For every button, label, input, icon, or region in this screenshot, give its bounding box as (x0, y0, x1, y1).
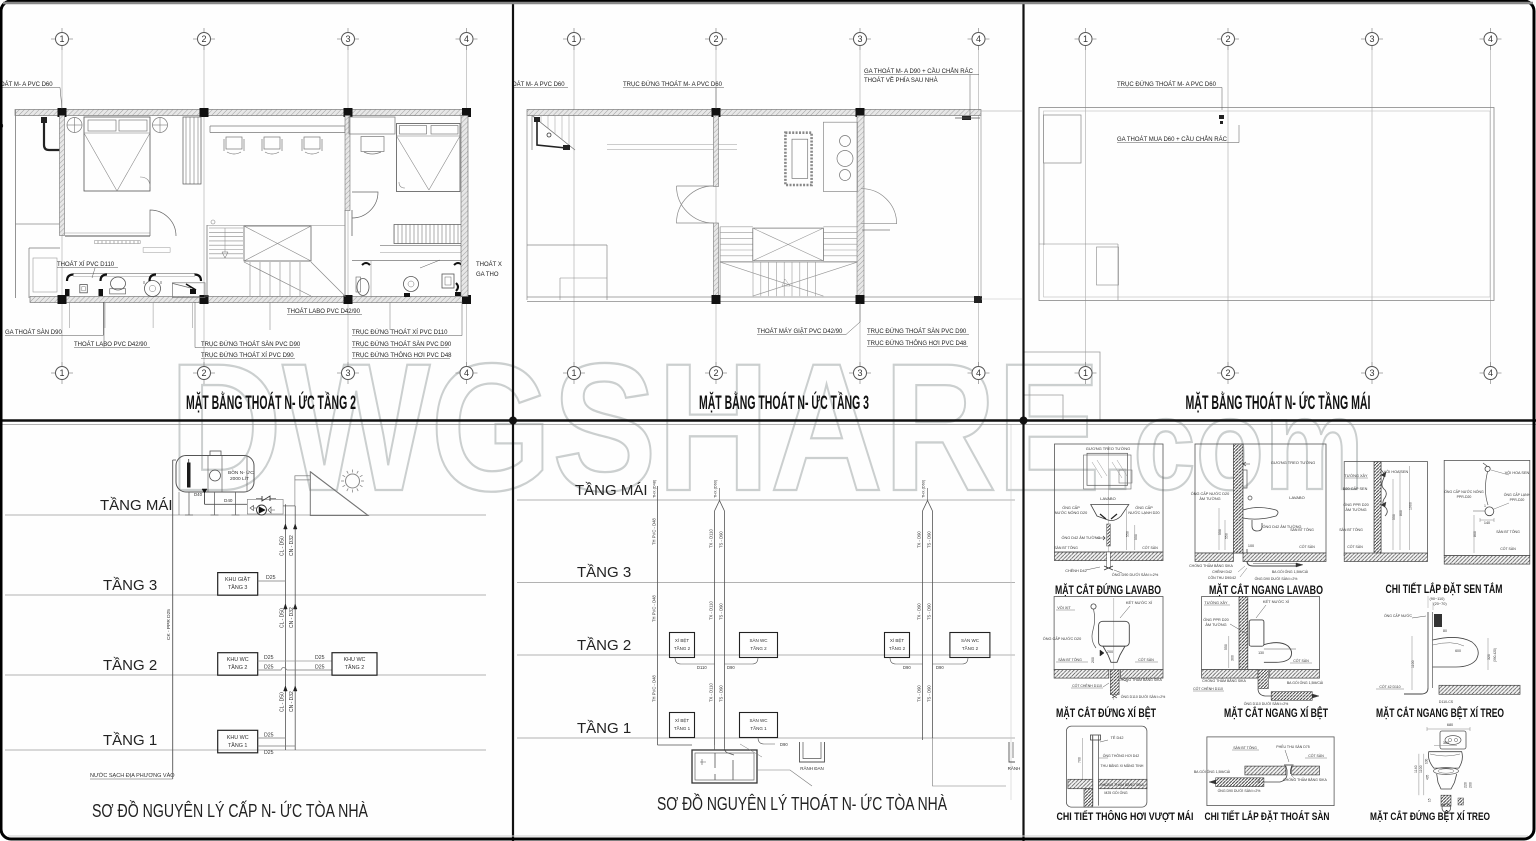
svg-text:ỐNG D90 DƯỚI SÀN i=2%: ỐNG D90 DƯỚI SÀN i=2% (1255, 576, 1298, 581)
svg-text:ỐNG D90 DƯỚI SÀN i=2%: ỐNG D90 DƯỚI SÀN i=2% (1218, 788, 1261, 793)
svg-text:ỐNG CẤP NƯỚC D20: ỐNG CẤP NƯỚC D20 (1043, 636, 1082, 641)
svg-text:200: 200 (1469, 782, 1473, 788)
svg-text:XÍ BỆT: XÍ BỆT (890, 636, 905, 643)
svg-text:TẦNG 3: TẦNG 3 (103, 577, 157, 594)
svg-text:TẦNG 2: TẦNG 2 (345, 664, 364, 671)
svg-text:D25: D25 (264, 750, 274, 756)
svg-text:TS - D90: TS - D90 (719, 531, 724, 548)
svg-text:CỐT SÀN: CỐT SÀN (1142, 545, 1158, 550)
svg-text:D110: D110 (697, 665, 707, 670)
svg-text:550: 550 (1224, 533, 1228, 539)
svg-text:800: 800 (1473, 531, 1477, 537)
svg-text:NƯỚC NÓNG D20: NƯỚC NÓNG D20 (1055, 510, 1087, 515)
svg-text:3: 3 (857, 34, 862, 44)
svg-text:D25: D25 (315, 665, 325, 671)
svg-text:3: 3 (857, 368, 862, 378)
svg-text:NƯỚC LẠNH D20: NƯỚC LẠNH D20 (1128, 510, 1159, 515)
svg-text:550: 550 (1218, 529, 1222, 535)
svg-text:CHỐNG THẤM BẰNG SIKA: CHỐNG THẤM BẰNG SIKA (1202, 678, 1246, 683)
svg-text:MẶT BẰNG THOÁT N- ỨC TẦNG 2: MẶT BẰNG THOÁT N- ỨC TẦNG 2 (186, 392, 356, 414)
svg-text:D25: D25 (264, 733, 274, 739)
svg-text:100: 100 (1248, 544, 1254, 548)
svg-text:GA THO: GA THO (476, 272, 499, 278)
svg-text:CỐT SÀN: CỐT SÀN (1138, 657, 1154, 662)
svg-text:TÊ D42: TÊ D42 (1111, 735, 1124, 740)
svg-text:3: 3 (1369, 34, 1374, 44)
svg-text:360: 360 (1443, 741, 1449, 745)
svg-text:2: 2 (201, 34, 206, 44)
svg-text:ÂM TƯỜNG: ÂM TƯỜNG (1345, 507, 1366, 512)
svg-text:D90: D90 (780, 742, 788, 747)
svg-text:600: 600 (1455, 649, 1461, 653)
svg-text:THOÁT X: THOÁT X (476, 261, 502, 268)
svg-text:SÀN WC: SÀN WC (961, 637, 980, 643)
svg-text:VÒI XỊT: VÒI XỊT (1057, 605, 1071, 610)
svg-text:ỐNG D90 DƯỚI SÀN i=2%: ỐNG D90 DƯỚI SÀN i=2% (1112, 572, 1159, 577)
svg-text:D25: D25 (264, 655, 274, 661)
svg-text:CỐT SÀN: CỐT SÀN (1293, 658, 1309, 663)
svg-text:CỐT SÀN: CỐT SÀN (1347, 544, 1363, 549)
svg-text:TẦNG 1: TẦNG 1 (577, 720, 631, 737)
svg-text:220: 220 (1464, 782, 1468, 788)
svg-text:VÒI HOA SEN: VÒI HOA SEN (1384, 469, 1409, 474)
svg-text:TẦNG 2: TẦNG 2 (228, 664, 247, 671)
svg-text:SÀN BT TÔNG: SÀN BT TÔNG (1339, 527, 1363, 532)
svg-text:BA GỐI ỐNG 1,5M/CÁI: BA GỐI ỐNG 1,5M/CÁI (1287, 680, 1323, 685)
svg-text:TX - D110: TX - D110 (709, 601, 714, 620)
svg-text:TX - D110: TX - D110 (709, 529, 714, 548)
svg-text:MẶT CẮT ĐỨNG XÍ BỆT: MẶT CẮT ĐỨNG XÍ BỆT (1056, 707, 1156, 720)
svg-text:SƠ ĐỒ NGUYÊN LÝ THOÁT N- ỨC TÒ: SƠ ĐỒ NGUYÊN LÝ THOÁT N- ỨC TÒA NHÀ (657, 793, 947, 814)
svg-text:SÀN WC: SÀN WC (750, 637, 769, 643)
svg-text:XÍ BỆT: XÍ BỆT (675, 716, 690, 723)
svg-text:TẦNG 1: TẦNG 1 (674, 725, 691, 731)
svg-text:TS - D90: TS - D90 (719, 603, 724, 620)
svg-text:1100: 1100 (1419, 765, 1423, 773)
svg-text:CỐT 42 D110: CỐT 42 D110 (1379, 684, 1400, 689)
svg-text:GA THOÁT SÀN D90: GA THOÁT SÀN D90 (5, 329, 62, 336)
svg-text:680: 680 (1447, 723, 1453, 727)
svg-text:CHỐNG THẤM BẰNG SIKA: CHỐNG THẤM BẰNG SIKA (1189, 563, 1233, 568)
svg-text:PPR-D20: PPR-D20 (1457, 495, 1472, 499)
svg-text:D90: D90 (936, 665, 944, 670)
svg-text:TƯỜNG XÂY: TƯỜNG XÂY (1344, 473, 1368, 478)
svg-text:KÉT NƯỚC XÍ: KÉT NƯỚC XÍ (1263, 599, 1290, 604)
svg-text:RÃNH: RÃNH (1008, 765, 1021, 771)
svg-text:TS - D90: TS - D90 (719, 685, 724, 702)
svg-text:CHI TIẾT THÔNG HƠI VƯỢT MÁI: CHI TIẾT THÔNG HƠI VƯỢT MÁI (1057, 810, 1194, 823)
svg-text:550: 550 (1392, 514, 1396, 520)
svg-text:THOÁT XÍ PVC D110: THOÁT XÍ PVC D110 (57, 261, 115, 268)
svg-text:550: 550 (1224, 644, 1228, 650)
svg-text:2: 2 (1225, 368, 1230, 378)
svg-text:D20 CẤP SEN: D20 CẤP SEN (1343, 487, 1368, 491)
svg-text:CỐT CHÊNH D110: CỐT CHÊNH D110 (1193, 686, 1223, 691)
svg-text:20: 20 (1257, 779, 1261, 783)
svg-text:KÉT NƯỚC XÍ: KÉT NƯỚC XÍ (1126, 600, 1153, 605)
svg-text:320: 320 (1487, 654, 1491, 660)
svg-text:TH PVC - D48: TH PVC - D48 (652, 595, 657, 622)
svg-text:THX (D60): THX (D60) (922, 479, 926, 498)
svg-text:1: 1 (1484, 504, 1486, 508)
svg-text:3: 3 (345, 368, 350, 378)
svg-text:4: 4 (1488, 368, 1493, 378)
svg-text:CỐT CHÊNH D110: CỐT CHÊNH D110 (1072, 683, 1102, 688)
svg-text:1: 1 (1083, 368, 1088, 378)
svg-text:ỐNG CẤP: ỐNG CẤP (1135, 505, 1153, 510)
svg-text:D25: D25 (315, 655, 325, 661)
svg-text:(390-420): (390-420) (1493, 648, 1497, 662)
svg-text:ÂM TƯỜNG: ÂM TƯỜNG (1205, 622, 1226, 627)
svg-text:TS - D90: TS - D90 (927, 603, 932, 620)
svg-text:CHÊNH D42: CHÊNH D42 (1212, 569, 1232, 574)
svg-text:D110-CS: D110-CS (1439, 700, 1454, 704)
svg-text:TX - D110: TX - D110 (709, 683, 714, 702)
svg-text:SÀN BT TÔNG: SÀN BT TÔNG (1290, 527, 1314, 532)
svg-text:D40: D40 (224, 498, 233, 503)
svg-text:140: 140 (1484, 521, 1490, 525)
svg-text:SÀN BT TÔNG: SÀN BT TÔNG (1233, 745, 1257, 750)
svg-text:GƯƠNG TREO TƯỜNG: GƯƠNG TREO TƯỜNG (1271, 460, 1315, 465)
svg-text:200: 200 (1091, 657, 1095, 663)
svg-text:GA THOÁT M- A D90 + CẦU CHẮN R: GA THOÁT M- A D90 + CẦU CHẮN RÁC (864, 67, 974, 75)
svg-text:KHU WC: KHU WC (227, 657, 249, 663)
svg-text:MẶT BẰNG THOÁT N- ỨC TẦNG MÁI: MẶT BẰNG THOÁT N- ỨC TẦNG MÁI (1186, 392, 1371, 414)
svg-text:CL - D50: CL - D50 (279, 536, 285, 556)
svg-text:TS - D90: TS - D90 (927, 531, 932, 548)
svg-text:1: 1 (1083, 34, 1088, 44)
svg-text:TẦNG 1: TẦNG 1 (750, 725, 767, 731)
svg-text:ỐNG CẤP: ỐNG CẤP (1062, 505, 1080, 510)
svg-text:D90: D90 (727, 665, 735, 670)
svg-text:CỐT SÀN: CỐT SÀN (1299, 544, 1315, 549)
svg-text:TRỤC ĐỨNG THOÁT M- A PVC D60: TRỤC ĐỨNG THOÁT M- A PVC D60 (623, 81, 723, 88)
svg-text:MẶT CẮT NGANG BỆT XÍ TREO: MẶT CẮT NGANG BỆT XÍ TREO (1376, 707, 1504, 720)
svg-text:(20~70): (20~70) (1433, 602, 1447, 606)
svg-text:CN - D32: CN - D32 (289, 691, 295, 712)
svg-text:XÍ BỆT: XÍ BỆT (675, 636, 690, 643)
svg-text:MẶT CẮT NGANG LAVABO: MẶT CẮT NGANG LAVABO (1209, 584, 1323, 597)
svg-text:15: 15 (1428, 798, 1432, 802)
svg-text:1: 1 (571, 368, 576, 378)
svg-text:TRỤC ĐỨNG THOÁT SÀN PVC D90: TRỤC ĐỨNG THOÁT SÀN PVC D90 (352, 341, 452, 348)
svg-text:1: 1 (571, 34, 576, 44)
svg-text:ỐNG D42 ÂM TƯỜNG: ỐNG D42 ÂM TƯỜNG (1062, 535, 1101, 540)
svg-text:CK - PPR D25: CK - PPR D25 (166, 609, 172, 640)
svg-text:1900: 1900 (1409, 502, 1413, 510)
svg-text:BỒN N- ỨC: BỒN N- ỨC (228, 469, 254, 476)
svg-text:2: 2 (713, 368, 718, 378)
svg-text:2000 LÍT: 2000 LÍT (230, 475, 249, 482)
svg-text:800: 800 (1399, 510, 1403, 516)
svg-text:CỐT SÀN: CỐT SÀN (1500, 546, 1516, 551)
svg-text:TRỤC ĐỨNG THOÁT XÍ PVC D110: TRỤC ĐỨNG THOÁT XÍ PVC D110 (352, 329, 448, 336)
svg-text:ỐNG PPR D20: ỐNG PPR D20 (1343, 502, 1369, 507)
svg-text:ỐNG D110 DƯỚI SÀN i=2%: ỐNG D110 DƯỚI SÀN i=2% (1244, 701, 1289, 706)
svg-text:550: 550 (1134, 534, 1138, 540)
svg-text:ỐNG CẤP NƯỚC D20: ỐNG CẤP NƯỚC D20 (1191, 491, 1230, 496)
svg-text:TX - D90: TX - D90 (917, 685, 922, 702)
svg-text:LAVABO: LAVABO (1100, 496, 1115, 501)
svg-text:OÁT M- A PVC D60: OÁT M- A PVC D60 (0, 81, 53, 88)
svg-text:ỐNG CẤP NƯỚC NÓNG: ỐNG CẤP NƯỚC NÓNG (1444, 489, 1484, 494)
svg-text:2: 2 (713, 34, 718, 44)
svg-text:CỐT SÀN: CỐT SÀN (1308, 753, 1324, 758)
svg-text:550: 550 (1126, 531, 1130, 537)
svg-text:(90~110): (90~110) (1429, 597, 1445, 601)
svg-text:TẦNG 2: TẦNG 2 (750, 645, 767, 651)
svg-text:SÀN BT TÔNG: SÀN BT TÔNG (1058, 657, 1082, 662)
svg-text:THOÁT LABO PVC D42/90: THOÁT LABO PVC D42/90 (287, 308, 361, 315)
svg-text:CHỐNG THẤM BẰNG SIKA: CHỐNG THẤM BẰNG SIKA (1283, 777, 1327, 782)
svg-text:THX (D60): THX (D60) (714, 479, 718, 498)
svg-text:435: 435 (1426, 774, 1430, 780)
svg-text:NƯỚC SẠCH ĐỊA PHƯƠNG VÀO: NƯỚC SẠCH ĐỊA PHƯƠNG VÀO (90, 772, 175, 779)
svg-text:SƠ ĐỒ NGUYÊN LÝ CẤP N- ỨC TÒA: SƠ ĐỒ NGUYÊN LÝ CẤP N- ỨC TÒA NHÀ (92, 800, 368, 821)
svg-text:SÀN WC: SÀN WC (750, 717, 769, 723)
svg-text:TRỤC ĐỨNG THOÁT SÀN PVC D90: TRỤC ĐỨNG THOÁT SÀN PVC D90 (867, 328, 967, 335)
svg-text:OÁT M- A PVC D60: OÁT M- A PVC D60 (512, 81, 565, 88)
svg-text:2: 2 (1225, 34, 1230, 44)
svg-text:700: 700 (1078, 757, 1082, 763)
svg-text:CHI TIẾT LẮP ĐẶT SEN TẮM: CHI TIẾT LẮP ĐẶT SEN TẮM (1386, 583, 1503, 596)
svg-text:TH PVC - D48: TH PVC - D48 (652, 675, 657, 702)
svg-text:TƯỜNG XÂY: TƯỜNG XÂY (1204, 600, 1228, 605)
svg-text:MẶT CẮT ĐỨNG BỆT XÍ TREO: MẶT CẮT ĐỨNG BỆT XÍ TREO (1370, 810, 1490, 823)
svg-text:SÀN BT TÔNG: SÀN BT TÔNG (1496, 529, 1520, 534)
svg-text:BA GỐI ỐNG 1,5M/CÁI: BA GỐI ỐNG 1,5M/CÁI (1272, 569, 1308, 574)
svg-text:THOÁT LABO PVC D42/90: THOÁT LABO PVC D42/90 (74, 341, 148, 348)
svg-text:MẶT BẰNG THOÁT N- ỨC TẦNG 3: MẶT BẰNG THOÁT N- ỨC TẦNG 3 (699, 392, 869, 414)
svg-text:1140: 1140 (1414, 765, 1418, 773)
svg-text:TẦNG 2: TẦNG 2 (103, 657, 157, 674)
svg-text:D25: D25 (266, 575, 276, 581)
svg-text:TẦNG 2: TẦNG 2 (577, 637, 631, 654)
svg-text:TRỤC ĐỨNG THÔNG HƠI PVC D48: TRỤC ĐỨNG THÔNG HƠI PVC D48 (867, 340, 967, 347)
svg-text:CN - D32: CN - D32 (289, 535, 295, 556)
svg-text:4: 4 (1488, 34, 1493, 44)
svg-text:1: 1 (59, 34, 64, 44)
svg-text:TS - D90: TS - D90 (927, 685, 932, 702)
svg-text:80: 80 (1443, 629, 1447, 633)
svg-text:MẶT CẮT ĐỨNG LAVABO: MẶT CẮT ĐỨNG LAVABO (1055, 584, 1161, 597)
svg-text:ỐNG CẤP NƯỚC: ỐNG CẤP NƯỚC (1384, 613, 1413, 618)
svg-text:PPR-D20: PPR-D20 (1510, 498, 1525, 502)
svg-text:TH PVC - D48: TH PVC - D48 (652, 518, 657, 545)
svg-text:MẶT CẮT NGANG XÍ BỆT: MẶT CẮT NGANG XÍ BỆT (1224, 707, 1328, 720)
svg-text:VÒI HOA SEN: VÒI HOA SEN (1505, 470, 1530, 475)
svg-text:CL - D50: CL - D50 (279, 608, 285, 628)
svg-text:TRỤC ĐỨNG THOÁT SÀN PVC D90: TRỤC ĐỨNG THOÁT SÀN PVC D90 (201, 341, 301, 348)
svg-text:4: 4 (464, 34, 469, 44)
svg-text:CHỐNG THẤM BẰNG SIKA: CHỐNG THẤM BẰNG SIKA (1118, 677, 1162, 682)
svg-text:1100: 1100 (1411, 660, 1415, 668)
svg-text:KHU GIẶT: KHU GIẶT (225, 576, 251, 583)
svg-text:TẦNG 1: TẦNG 1 (103, 732, 157, 749)
svg-text:RÃNH ĐAN: RÃNH ĐAN (800, 765, 824, 771)
svg-text:3: 3 (1369, 368, 1374, 378)
svg-text:ỐNG PPR D20: ỐNG PPR D20 (1203, 617, 1229, 622)
svg-text:TRỤC ĐỨNG THOÁT XÍ PVC D90: TRỤC ĐỨNG THOÁT XÍ PVC D90 (201, 352, 294, 359)
svg-text:THOÁT MÁY GIẶT PVC D42/90: THOÁT MÁY GIẶT PVC D42/90 (757, 328, 843, 335)
svg-text:4: 4 (976, 368, 981, 378)
svg-text:CHỐNG THẤM BẰNG SIKA: CHỐNG THẤM BẰNG SIKA (1100, 782, 1144, 787)
svg-text:CÔN THU D90/42: CÔN THU D90/42 (1208, 575, 1236, 580)
svg-text:THU BẰNG XI MĂNG TINH: THU BẰNG XI MĂNG TINH (1101, 763, 1144, 768)
svg-text:TẦNG 3: TẦNG 3 (577, 564, 631, 581)
svg-text:CN - D32: CN - D32 (289, 607, 295, 628)
svg-text:TX - D90: TX - D90 (917, 603, 922, 620)
svg-text:3: 3 (345, 34, 350, 44)
svg-text:D90: D90 (903, 665, 911, 670)
svg-text:TẦNG MÁI: TẦNG MÁI (575, 482, 648, 499)
svg-text:4: 4 (976, 34, 981, 44)
svg-text:ỐNG THÔNG HƠI D42: ỐNG THÔNG HƠI D42 (1103, 753, 1139, 758)
svg-text:KHU WC: KHU WC (227, 735, 249, 741)
svg-text:D25: D25 (264, 665, 274, 671)
svg-text:1: 1 (59, 368, 64, 378)
svg-text:TẦNG 2: TẦNG 2 (889, 645, 906, 651)
svg-text:CHI TIẾT LẮP ĐẶT THOÁT SÀN: CHI TIẾT LẮP ĐẶT THOÁT SÀN (1205, 810, 1330, 823)
svg-text:TẦNG MÁI: TẦNG MÁI (100, 497, 173, 514)
svg-text:ÂM TƯỜNG: ÂM TƯỜNG (1199, 496, 1220, 501)
svg-text:KHU WC: KHU WC (344, 657, 366, 663)
svg-text:THX (D48): THX (D48) (653, 479, 657, 498)
svg-text:ỐNG D110 DƯỚI SÀN i=2%: ỐNG D110 DƯỚI SÀN i=2% (1121, 694, 1166, 699)
svg-text:TRỤC ĐỨNG THOÁT M- A PVC D60: TRỤC ĐỨNG THOÁT M- A PVC D60 (1117, 81, 1217, 88)
svg-text:100: 100 (1425, 758, 1429, 764)
svg-text:THOÁT VỀ PHÍA SAU NHÀ: THOÁT VỀ PHÍA SAU NHÀ (864, 77, 938, 84)
svg-text:300: 300 (1231, 655, 1235, 661)
svg-text:GA THOÁT MUA D60 + CẦU CHẮN RÁ: GA THOÁT MUA D60 + CẦU CHẮN RÁC (1117, 135, 1228, 143)
svg-text:TẦNG 2: TẦNG 2 (962, 645, 979, 651)
svg-text:ỐNG CẤP LẠNH: ỐNG CẤP LẠNH (1504, 492, 1531, 497)
svg-text:PHỄU THU SÀN D75: PHỄU THU SÀN D75 (1276, 744, 1309, 749)
svg-text:LAVABO: LAVABO (1289, 495, 1304, 500)
svg-text:M25 GỐI ỐNG: M25 GỐI ỐNG (1104, 790, 1127, 795)
svg-text:BA GỐI ỐNG 1,5M/CÁI: BA GỐI ỐNG 1,5M/CÁI (1194, 769, 1230, 774)
svg-text:CL - D50: CL - D50 (279, 692, 285, 712)
svg-text:TẦNG 3: TẦNG 3 (228, 584, 247, 591)
svg-text:TX - D90: TX - D90 (917, 531, 922, 548)
svg-text:SÀN BT TÔNG: SÀN BT TÔNG (1054, 545, 1078, 550)
svg-text:2: 2 (201, 368, 206, 378)
svg-text:TẦNG 1: TẦNG 1 (228, 742, 247, 749)
svg-text:TRỤC ĐỨNG THÔNG HƠI PVC D48: TRỤC ĐỨNG THÔNG HƠI PVC D48 (352, 352, 452, 359)
svg-text:D40: D40 (194, 492, 203, 497)
svg-text:130: 130 (1258, 651, 1264, 655)
svg-text:200: 200 (1107, 650, 1113, 654)
svg-text:CHÊNH D42: CHÊNH D42 (1065, 568, 1087, 573)
svg-text:4: 4 (464, 368, 469, 378)
svg-text:GƯƠNG TREO TƯỜNG: GƯƠNG TREO TƯỜNG (1086, 446, 1130, 451)
svg-text:TẦNG 2: TẦNG 2 (674, 645, 691, 651)
